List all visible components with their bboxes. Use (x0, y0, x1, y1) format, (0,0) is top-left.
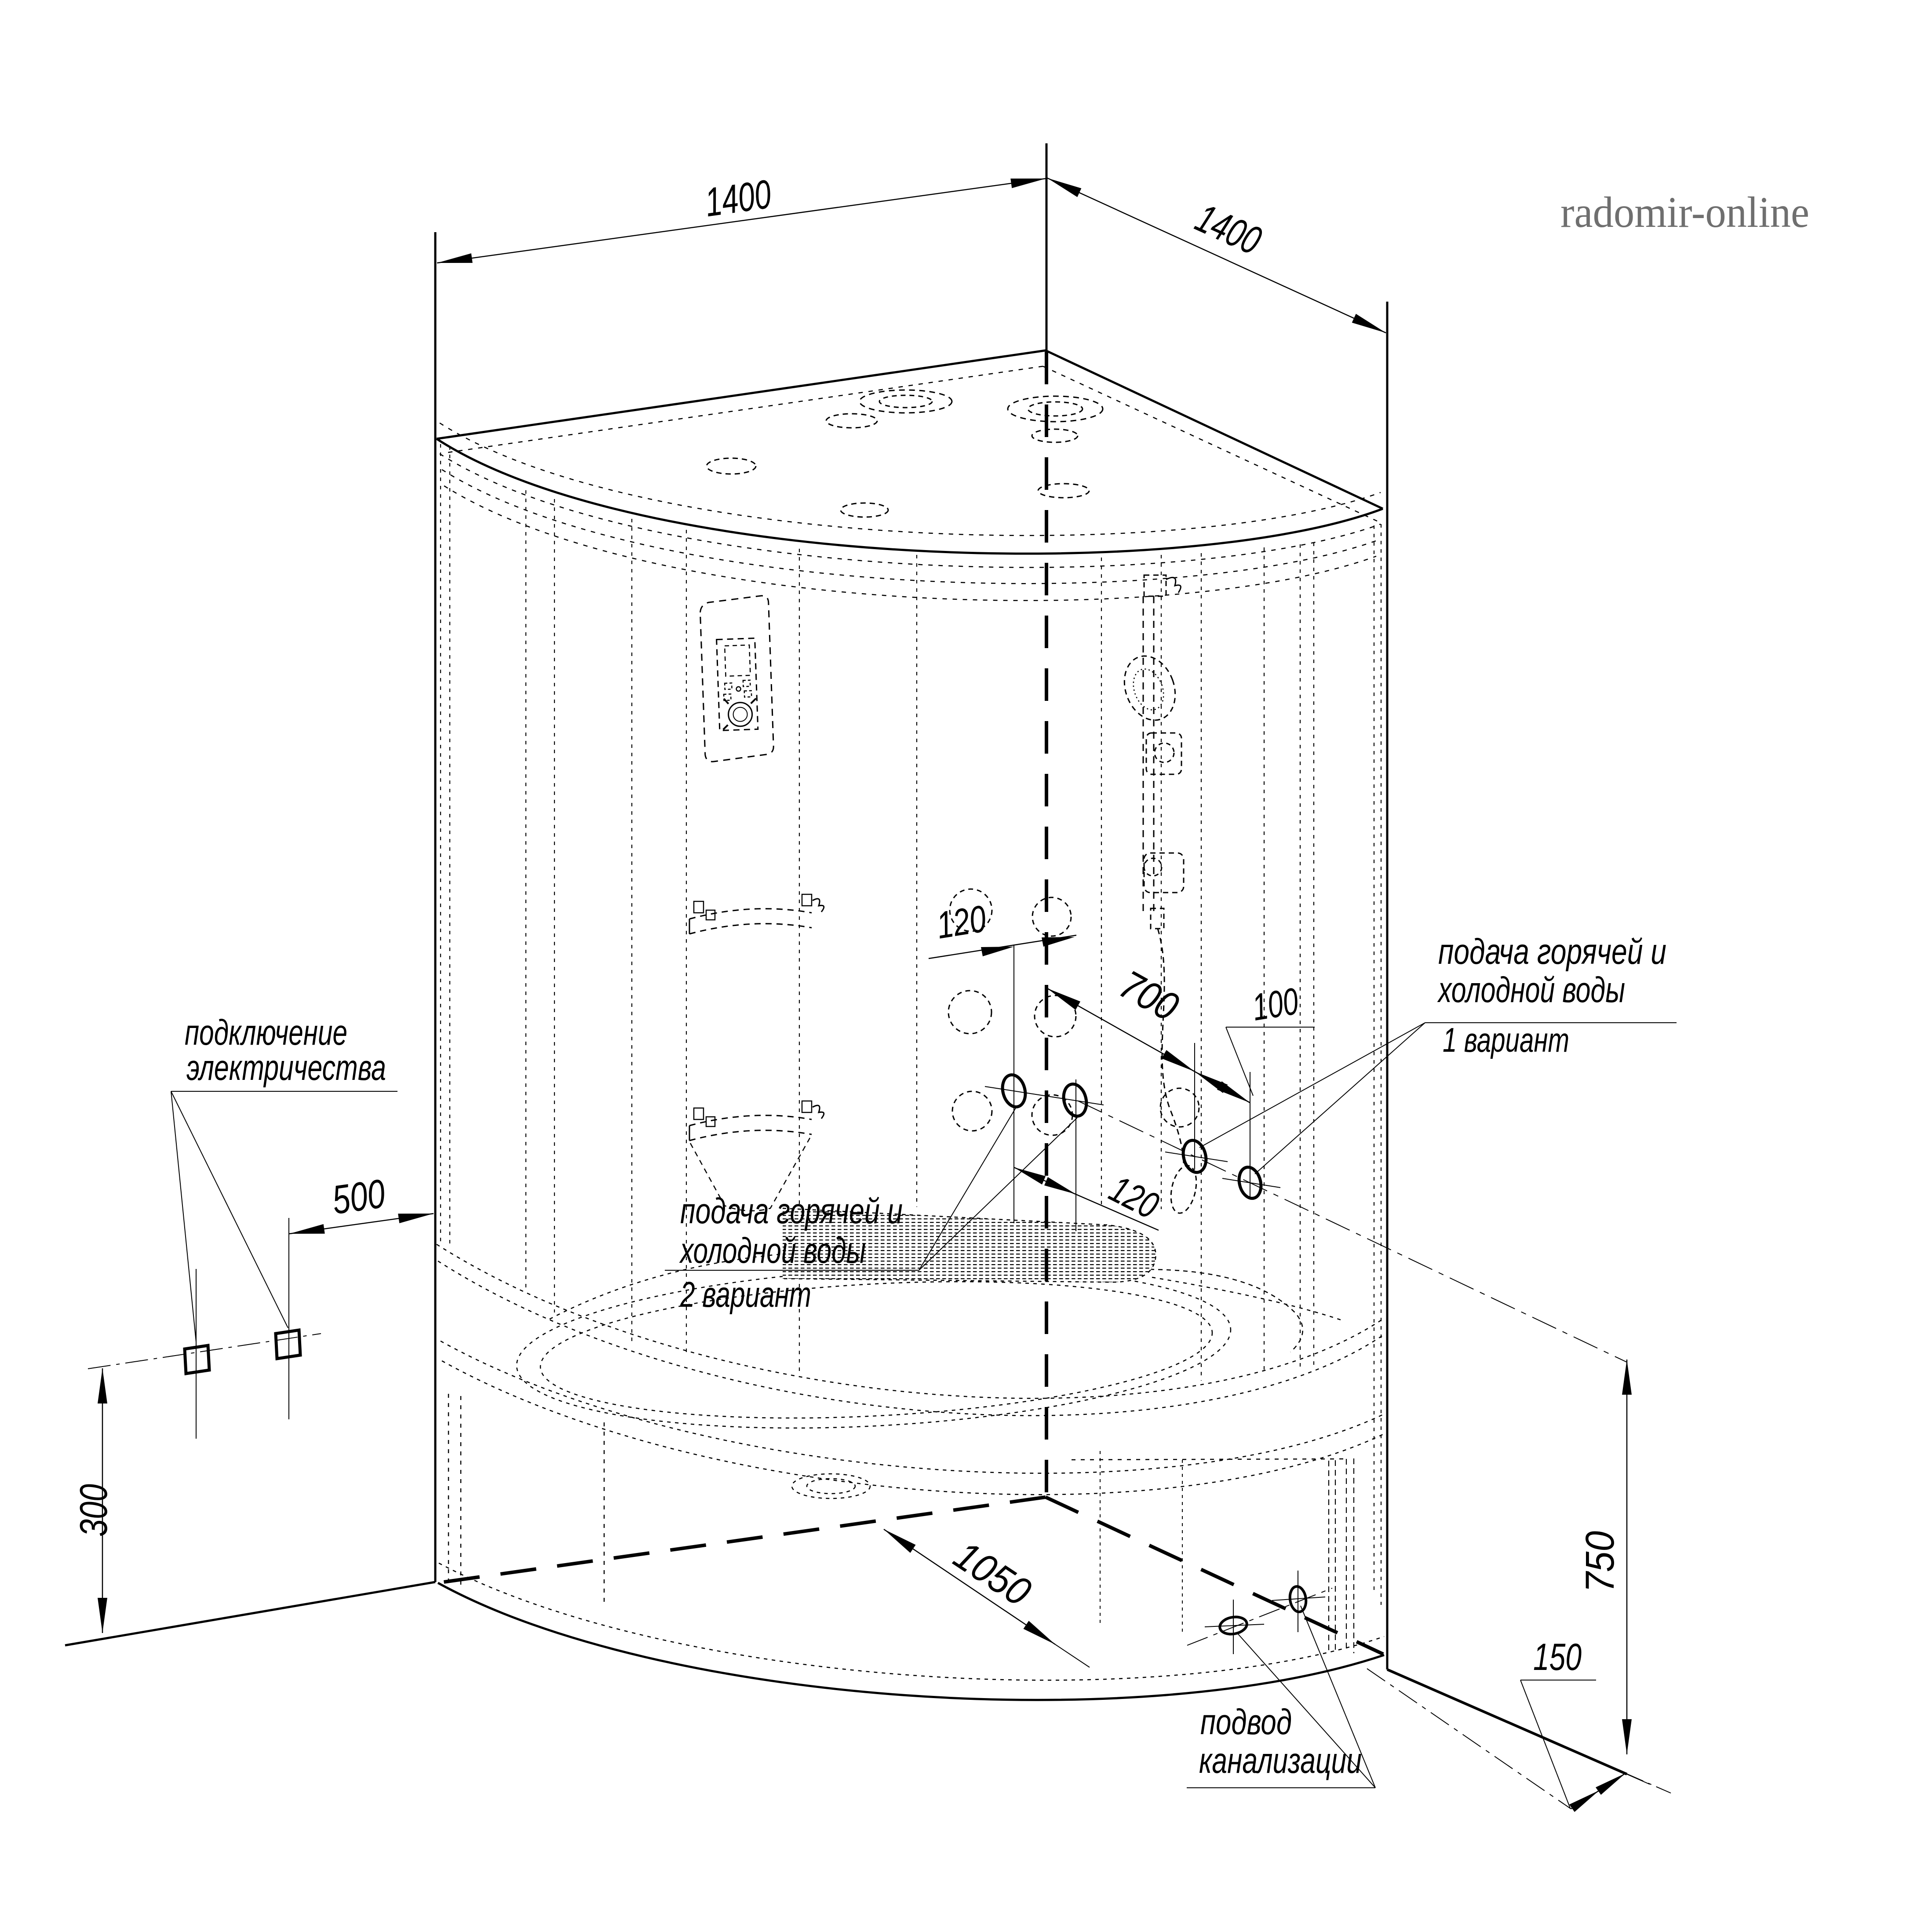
svg-text:1400: 1400 (702, 171, 774, 225)
svg-text:100: 100 (1250, 980, 1301, 1029)
svg-text:2 вариант: 2 вариант (680, 1275, 811, 1315)
svg-text:подача горячей и: подача горячей и (1438, 932, 1666, 972)
svg-text:подвод: подвод (1200, 1702, 1292, 1742)
svg-text:150: 150 (1533, 1636, 1582, 1678)
svg-text:120: 120 (934, 897, 989, 947)
svg-text:холодной воды: холодной воды (1437, 970, 1625, 1010)
svg-text:подключение: подключение (185, 1013, 347, 1053)
svg-text:канализации: канализации (1199, 1741, 1362, 1781)
svg-text:300: 300 (72, 1484, 115, 1537)
svg-text:1 вариант: 1 вариант (1443, 1021, 1569, 1059)
svg-text:подача горячей и: подача горячей и (680, 1191, 903, 1231)
svg-text:500: 500 (329, 1171, 388, 1223)
svg-text:электричества: электричества (186, 1048, 386, 1088)
svg-text:750: 750 (1578, 1531, 1622, 1593)
svg-text:холодной воды: холодной воды (679, 1231, 866, 1271)
svg-text:radomir-online: radomir-online (1560, 188, 1809, 237)
